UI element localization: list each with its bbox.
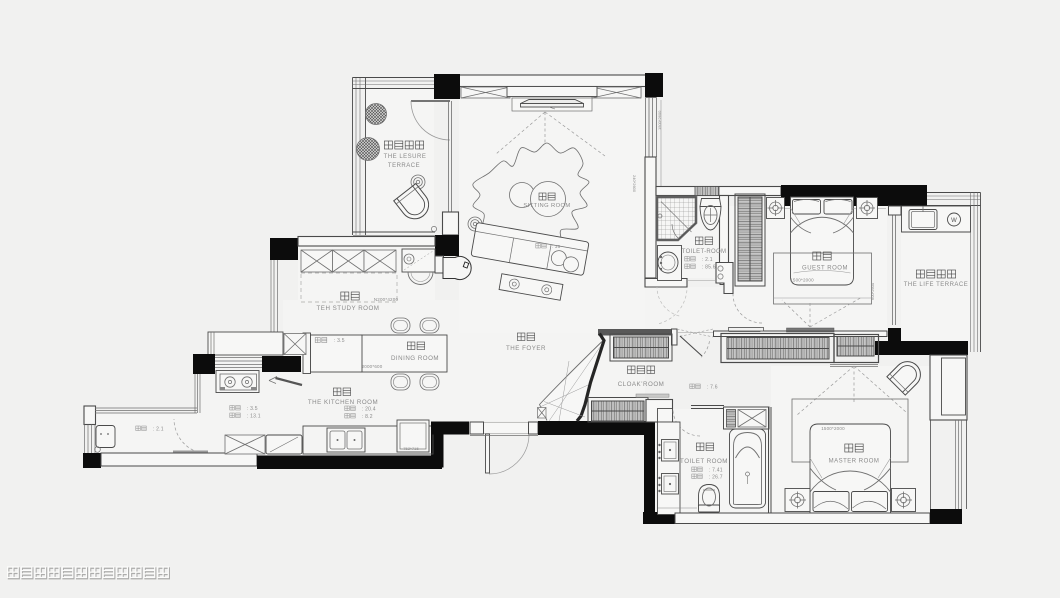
svg-text:SITTING ROOM: SITTING ROOM bbox=[523, 203, 570, 209]
svg-text:: 26.7: : 26.7 bbox=[709, 475, 723, 481]
svg-text:240*2600: 240*2600 bbox=[632, 175, 637, 193]
svg-text:TOILET ROOM: TOILET ROOM bbox=[680, 458, 728, 465]
svg-text:THE FOYER: THE FOYER bbox=[506, 345, 546, 352]
svg-text:: 13.1: : 13.1 bbox=[247, 414, 261, 420]
svg-text:MASTER ROOM: MASTER ROOM bbox=[829, 459, 880, 465]
svg-text:: 85.6: : 85.6 bbox=[702, 265, 716, 271]
svg-text:: 3.5: : 3.5 bbox=[334, 338, 345, 344]
svg-text:DINING ROOM: DINING ROOM bbox=[391, 355, 439, 362]
svg-text:TEH STUDY ROOM: TEH STUDY ROOM bbox=[317, 305, 380, 312]
svg-text:N200*4200: N200*4200 bbox=[374, 297, 399, 302]
svg-text:: 20.4: : 20.4 bbox=[362, 407, 376, 413]
svg-text:GUEST ROOM: GUEST ROOM bbox=[802, 266, 848, 272]
svg-text:: 3.5: : 3.5 bbox=[247, 406, 258, 412]
svg-text:600*2600: 600*2600 bbox=[870, 282, 875, 300]
svg-text:: 2.1: : 2.1 bbox=[153, 427, 164, 433]
svg-text:TERRACE: TERRACE bbox=[388, 163, 420, 169]
svg-text:THE LIFE TERRACE: THE LIFE TERRACE bbox=[904, 282, 969, 288]
svg-text:: 8.2: : 8.2 bbox=[362, 414, 373, 420]
svg-text:TOILET-ROOM: TOILET-ROOM bbox=[682, 249, 727, 255]
svg-text:1500*2000: 1500*2000 bbox=[790, 278, 814, 283]
svg-text:1500*2000: 1500*2000 bbox=[821, 426, 845, 431]
svg-text:CLOAK’ROOM: CLOAK’ROOM bbox=[618, 381, 665, 388]
svg-text:: 7.6: : 7.6 bbox=[707, 385, 718, 391]
svg-text:W: W bbox=[951, 218, 957, 224]
svg-text:: 2.1: : 2.1 bbox=[702, 257, 713, 263]
svg-text:1500*2600: 1500*2600 bbox=[657, 110, 662, 130]
svg-text:: 7.41: : 7.41 bbox=[709, 468, 723, 474]
svg-text:: 36: : 36 bbox=[552, 244, 561, 249]
svg-text:THE LESURE: THE LESURE bbox=[384, 154, 427, 160]
svg-text:752*715: 752*715 bbox=[403, 446, 419, 451]
svg-text:THE KITCHEN ROOM: THE KITCHEN ROOM bbox=[308, 399, 378, 406]
svg-text:2000*600: 2000*600 bbox=[362, 364, 383, 369]
